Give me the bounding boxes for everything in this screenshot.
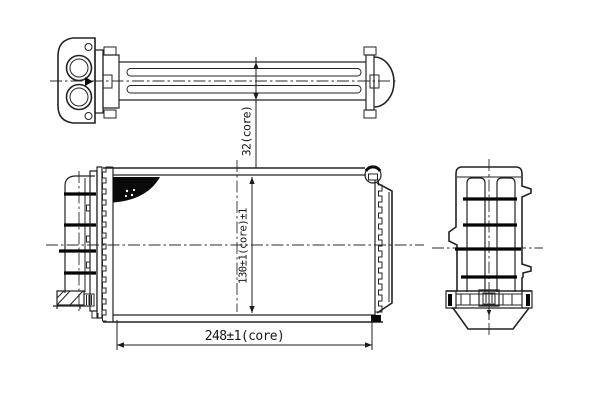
dim-core-height-label: 130±1(core)±1 <box>238 208 250 284</box>
technical-drawing: 32(core) 130±1(core)±1 248±1(core) <box>0 0 600 400</box>
dim-core-depth-label: 32(core) <box>240 106 254 157</box>
dim-core-length-label: 248±1(core) <box>205 329 285 344</box>
